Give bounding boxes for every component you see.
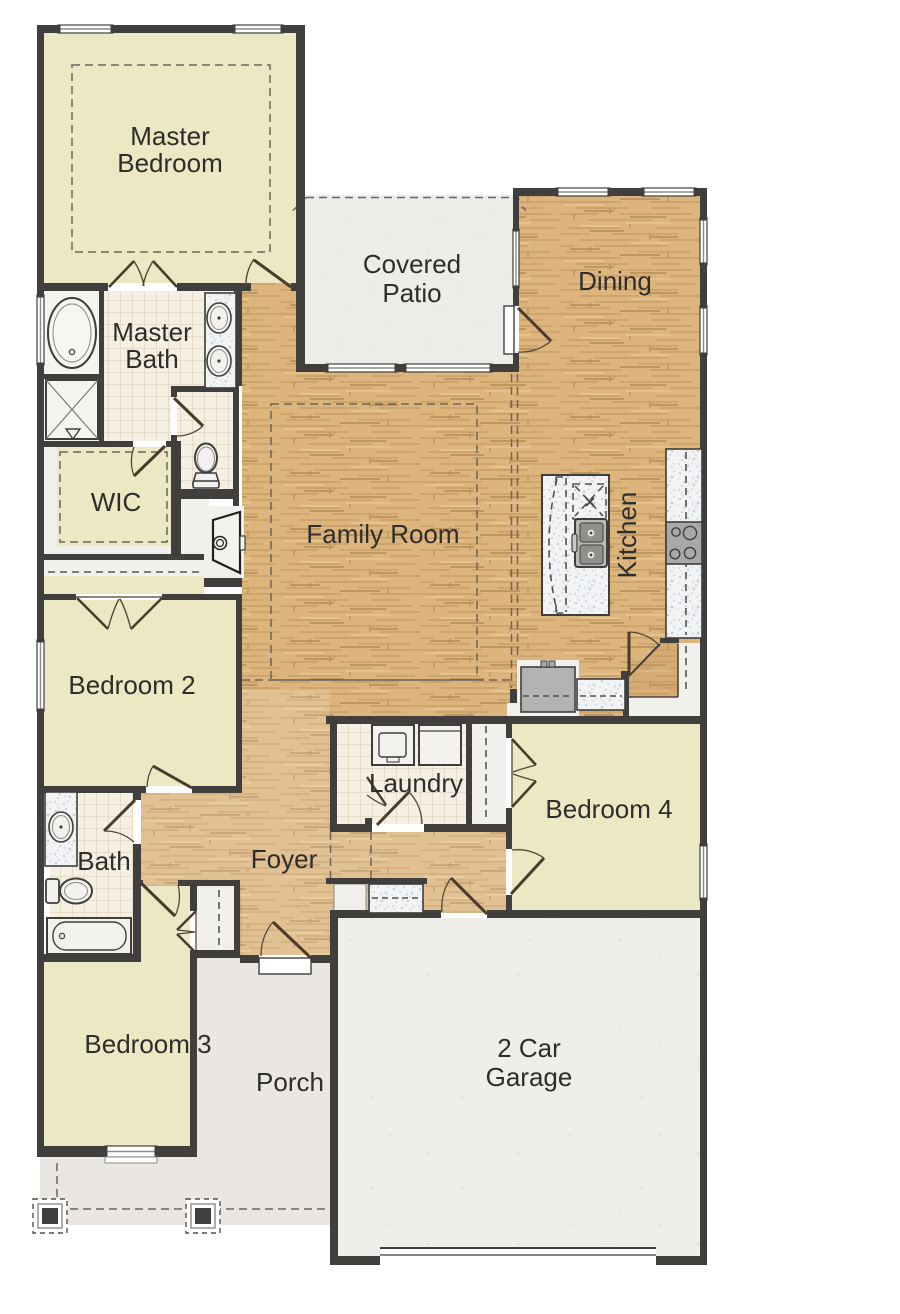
svg-text:WIC: WIC — [91, 487, 142, 517]
svg-text:Kitchen: Kitchen — [612, 492, 642, 579]
svg-text:Foyer: Foyer — [251, 844, 318, 874]
svg-text:Bedroom: Bedroom — [117, 148, 223, 178]
svg-text:Patio: Patio — [382, 278, 441, 308]
svg-text:Dining: Dining — [578, 266, 652, 296]
svg-text:Covered: Covered — [363, 249, 461, 279]
svg-text:Bedroom 2: Bedroom 2 — [68, 670, 195, 700]
svg-text:Laundry: Laundry — [369, 768, 463, 798]
svg-text:2 Car: 2 Car — [497, 1033, 561, 1063]
svg-text:Bath: Bath — [125, 344, 179, 374]
svg-text:Bath: Bath — [77, 846, 131, 876]
svg-text:Bedroom 3: Bedroom 3 — [84, 1029, 211, 1059]
svg-text:Porch: Porch — [256, 1067, 324, 1097]
svg-text:Garage: Garage — [486, 1062, 573, 1092]
svg-text:Master: Master — [112, 317, 192, 347]
svg-text:Bedroom 4: Bedroom 4 — [545, 794, 672, 824]
svg-text:Master: Master — [130, 121, 210, 151]
svg-text:Family Room: Family Room — [306, 519, 459, 549]
